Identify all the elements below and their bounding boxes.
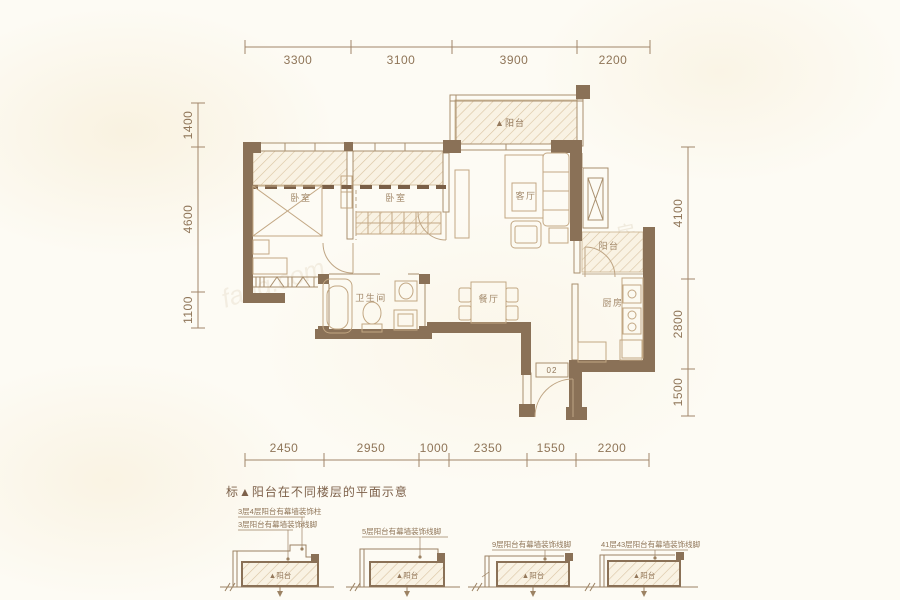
kitchen-fixtures xyxy=(578,278,643,362)
balcony-right-label: 阳台 xyxy=(598,240,619,251)
dim-right-1: 4100 xyxy=(671,199,685,228)
legend-1-label-2: 3层阳台有幕墙装饰线脚 xyxy=(238,519,317,529)
legend-1-label-1: 3层4层阳台有幕墙装饰柱 xyxy=(238,506,322,516)
floorplan-drawing: fang.com 房 3300 3100 3900 2200 2450 2950… xyxy=(0,0,900,600)
legend-4-label-1: 41层43层阳台有幕墙装饰线脚 xyxy=(601,539,700,549)
unit-number: 02 xyxy=(547,366,558,375)
dim-bottom-5: 1550 xyxy=(537,441,566,455)
legend-3-balcony-label: ▲阳台 xyxy=(522,570,544,580)
legend-diagram-2: 5层阳台有幕墙装饰线脚 ▲阳台 xyxy=(346,526,460,597)
bathroom-label: 卫生间 xyxy=(355,292,387,303)
dim-bottom-6: 2200 xyxy=(598,441,627,455)
dimension-left: 1400 4600 1100 xyxy=(181,103,205,328)
floorplan-page: fang.com 房 3300 3100 3900 2200 2450 2950… xyxy=(0,0,900,600)
dim-right-3: 1500 xyxy=(671,378,685,407)
dim-bottom-1: 2450 xyxy=(270,441,299,455)
dim-right-2: 2800 xyxy=(671,310,685,339)
dimension-bottom: 2450 2950 1000 2350 1550 2200 xyxy=(245,441,649,467)
dim-bottom-2: 2950 xyxy=(357,441,386,455)
dim-bottom-4: 2350 xyxy=(474,441,503,455)
balcony-top-label: ▲阳台 xyxy=(495,117,525,128)
legend-4-balcony-label: ▲阳台 xyxy=(633,570,655,580)
bedroom-left-door xyxy=(323,243,353,273)
dim-top-1: 3300 xyxy=(284,53,313,67)
bedroom-left-closet-hatch xyxy=(253,151,347,185)
legend-title: 标▲阳台在不同楼层的平面示意 xyxy=(226,484,408,499)
bedroom-mid-label: 卧室 xyxy=(385,192,406,203)
legend-diagram-1: 3层4层阳台有幕墙装饰柱 3层阳台有幕墙装饰线脚 ▲阳台 xyxy=(220,506,334,597)
dining-label: 餐厅 xyxy=(478,293,499,304)
dim-left-2: 4600 xyxy=(181,205,195,234)
dimension-top: 3300 3100 3900 2200 xyxy=(245,40,650,67)
dim-top-4: 2200 xyxy=(599,53,628,67)
dim-left-1: 1400 xyxy=(181,111,195,140)
dim-top-2: 3100 xyxy=(387,53,416,67)
dim-bottom-3: 1000 xyxy=(420,441,449,455)
dimension-right: 4100 2800 1500 xyxy=(671,147,695,416)
bedroom-left-label: 卧室 xyxy=(290,192,311,203)
bedroom-mid-closet-hatch xyxy=(353,151,443,185)
legend-2-label-1: 5层阳台有幕墙装饰线脚 xyxy=(362,526,441,536)
legend: 标▲阳台在不同楼层的平面示意 3层4层阳台有幕墙装饰柱 3层阳台有幕墙装饰线脚 … xyxy=(220,484,700,597)
legend-3-label-1: 9层阳台有幕墙装饰线脚 xyxy=(492,539,571,549)
living-furniture xyxy=(455,153,569,248)
legend-diagram-4: 41层43层阳台有幕墙装饰线脚 ▲阳台 xyxy=(581,539,700,597)
bathroom-fixtures xyxy=(323,279,417,333)
legend-diagram-3: 9层阳台有幕墙装饰线脚 ▲阳台 xyxy=(468,539,588,597)
legend-1-balcony-label: ▲阳台 xyxy=(269,570,291,580)
living-label: 客厅 xyxy=(515,190,536,201)
dim-left-3: 1100 xyxy=(181,296,195,324)
dim-top-3: 3900 xyxy=(500,53,529,67)
legend-2-balcony-label: ▲阳台 xyxy=(396,570,418,580)
unit-number-plate: 02 xyxy=(536,363,568,377)
kitchen-label: 厨房 xyxy=(602,297,623,308)
